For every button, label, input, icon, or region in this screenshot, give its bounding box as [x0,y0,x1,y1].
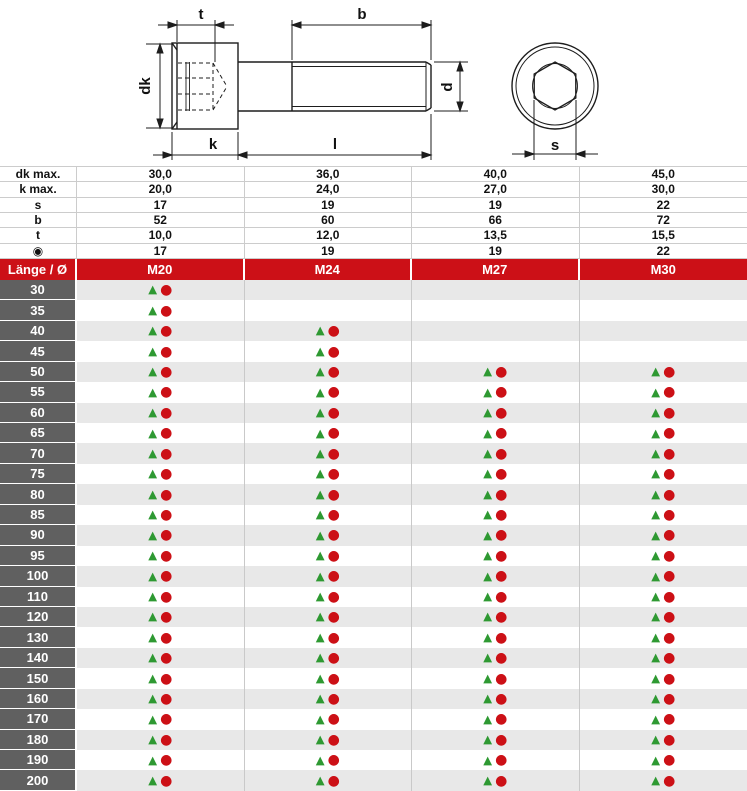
availability-cell: ▲● [580,730,747,750]
spec-value: 17 [77,198,245,212]
triangle-icon: ▲ [148,632,157,644]
length-diameter-header: Länge / Ø [0,259,77,280]
availability-cell: ▲● [245,423,413,443]
triangle-icon: ▲ [148,734,157,746]
triangle-icon: ▲ [148,550,157,562]
availability-cell: ▲● [77,280,245,300]
availability-cell: ▲● [77,403,245,423]
table-row: 160▲●▲●▲●▲● [0,689,747,709]
availability-cell: ▲● [77,505,245,525]
circle-icon: ● [663,672,675,686]
dim-label-l: l [333,136,337,153]
availability-cell: ▲● [77,607,245,627]
triangle-icon: ▲ [651,775,660,787]
availability-cell: ▲● [580,525,747,545]
triangle-icon: ▲ [148,591,157,603]
circle-icon: ● [663,467,675,481]
availability-cell: ▲● [580,607,747,627]
availability-cell: ▲● [580,546,747,566]
circle-icon: ● [328,365,340,379]
circle-icon: ● [328,508,340,522]
table-row: 30▲● [0,280,747,300]
triangle-icon: ▲ [651,387,660,399]
spec-value: 19 [245,244,413,258]
circle-icon: ● [328,385,340,399]
availability-cell: ▲● [412,607,580,627]
availability-cell: ▲● [245,525,413,545]
row-length-label: 30 [0,280,77,300]
table-row: 65▲●▲●▲●▲● [0,423,747,443]
spec-value: 72 [580,213,747,227]
availability-cell: ▲● [580,770,747,790]
availability-cell: ▲● [245,607,413,627]
triangle-icon: ▲ [148,652,157,664]
table-row: 95▲●▲●▲●▲● [0,546,747,566]
row-length-label: 200 [0,770,77,790]
triangle-icon: ▲ [316,509,325,521]
spec-row: s17191922 [0,198,747,213]
triangle-icon: ▲ [316,714,325,726]
availability-cell: ▲● [580,750,747,770]
availability-cell: ▲● [412,403,580,423]
circle-icon: ● [328,569,340,583]
availability-cell: ▲● [245,730,413,750]
availability-cell: ▲● [245,382,413,402]
triangle-icon: ▲ [316,448,325,460]
availability-cell: ▲● [412,546,580,566]
spec-value: 19 [245,198,413,212]
circle-icon: ● [495,774,507,788]
triangle-icon: ▲ [651,652,660,664]
availability-cell: ▲● [412,443,580,463]
triangle-icon: ▲ [316,387,325,399]
circle-icon: ● [160,569,172,583]
table-row: 190▲●▲●▲●▲● [0,750,747,770]
availability-cell: ▲● [580,505,747,525]
availability-cell [245,300,413,320]
triangle-icon: ▲ [148,305,157,317]
availability-cell: ▲● [245,341,413,361]
circle-icon: ● [328,672,340,686]
table-row: 80▲●▲●▲●▲● [0,484,747,504]
triangle-icon: ▲ [316,550,325,562]
dimension-spec-table: dk max.30,036,040,045,0k max.20,024,027,… [0,166,747,259]
availability-cell [412,300,580,320]
spec-value: 20,0 [77,182,245,196]
availability-cell: ▲● [412,525,580,545]
availability-cell: ▲● [580,443,747,463]
socket-key-size-icon: ◉ [0,244,77,258]
circle-icon: ● [495,447,507,461]
table-row: 70▲●▲●▲●▲● [0,443,747,463]
row-length-label: 60 [0,403,77,423]
circle-icon: ● [160,508,172,522]
table-row: 110▲●▲●▲●▲● [0,587,747,607]
table-row: 130▲●▲●▲●▲● [0,627,747,647]
circle-icon: ● [328,610,340,624]
spec-row: k max.20,024,027,030,0 [0,182,747,197]
table-row: 40▲●▲● [0,321,747,341]
triangle-icon: ▲ [651,591,660,603]
circle-icon: ● [495,528,507,542]
circle-icon: ● [328,406,340,420]
spec-value: 19 [412,244,580,258]
triangle-icon: ▲ [316,591,325,603]
triangle-icon: ▲ [483,714,492,726]
triangle-icon: ▲ [483,693,492,705]
table-row: 170▲●▲●▲●▲● [0,709,747,729]
dim-label-d: d [439,82,456,91]
triangle-icon: ▲ [316,489,325,501]
circle-icon: ● [663,774,675,788]
availability-cell: ▲● [580,362,747,382]
spec-value: 66 [412,213,580,227]
triangle-icon: ▲ [651,366,660,378]
spec-value: 10,0 [77,228,245,242]
availability-cell: ▲● [77,730,245,750]
availability-cell [580,280,747,300]
availability-cell: ▲● [412,423,580,443]
circle-icon: ● [328,528,340,542]
circle-icon: ● [663,426,675,440]
triangle-icon: ▲ [148,448,157,460]
spec-label: b [0,213,77,227]
spec-value: 22 [580,244,747,258]
availability-cell: ▲● [580,403,747,423]
circle-icon: ● [663,712,675,726]
triangle-icon: ▲ [316,366,325,378]
dim-label-dk: dk [137,77,154,95]
table-row: 45▲●▲● [0,341,747,361]
triangle-icon: ▲ [148,284,157,296]
circle-icon: ● [328,651,340,665]
availability-cell: ▲● [245,566,413,586]
availability-cell [580,341,747,361]
circle-icon: ● [495,569,507,583]
triangle-icon: ▲ [483,611,492,623]
triangle-icon: ▲ [651,509,660,521]
availability-cell: ▲● [245,750,413,770]
availability-cell: ▲● [580,648,747,668]
triangle-icon: ▲ [148,468,157,480]
spec-label: s [0,198,77,212]
triangle-icon: ▲ [483,652,492,664]
circle-icon: ● [495,753,507,767]
circle-icon: ● [160,324,172,338]
row-length-label: 170 [0,709,77,729]
triangle-icon: ▲ [316,571,325,583]
availability-cell: ▲● [77,648,245,668]
circle-icon: ● [328,549,340,563]
availability-cell: ▲● [245,689,413,709]
circle-icon: ● [160,753,172,767]
table-row: 60▲●▲●▲●▲● [0,403,747,423]
spec-label: dk max. [0,167,77,181]
triangle-icon: ▲ [651,673,660,685]
triangle-icon: ▲ [651,693,660,705]
circle-icon: ● [160,631,172,645]
availability-cell [580,321,747,341]
availability-cell: ▲● [77,321,245,341]
triangle-icon: ▲ [316,632,325,644]
availability-cell: ▲● [77,587,245,607]
triangle-icon: ▲ [316,468,325,480]
circle-icon: ● [160,712,172,726]
triangle-icon: ▲ [316,775,325,787]
triangle-icon: ▲ [651,734,660,746]
spec-value: 60 [245,213,413,227]
column-header-m27: M27 [412,259,580,280]
availability-cell: ▲● [245,505,413,525]
spec-row: b52606672 [0,213,747,228]
availability-cell: ▲● [245,587,413,607]
circle-icon: ● [495,610,507,624]
availability-table: 30▲●35▲●40▲●▲●45▲●▲●50▲●▲●▲●▲●55▲●▲●▲●▲●… [0,280,747,791]
triangle-icon: ▲ [483,571,492,583]
circle-icon: ● [663,692,675,706]
dim-label-b: b [357,6,366,23]
circle-icon: ● [495,406,507,420]
circle-icon: ● [160,385,172,399]
availability-cell: ▲● [412,689,580,709]
circle-icon: ● [663,590,675,604]
circle-icon: ● [160,488,172,502]
circle-icon: ● [160,447,172,461]
triangle-icon: ▲ [148,428,157,440]
circle-icon: ● [495,549,507,563]
row-length-label: 75 [0,464,77,484]
spec-value: 17 [77,244,245,258]
circle-icon: ● [160,774,172,788]
spec-value: 36,0 [245,167,413,181]
availability-cell: ▲● [245,443,413,463]
circle-icon: ● [495,488,507,502]
circle-icon: ● [663,631,675,645]
row-length-label: 50 [0,362,77,382]
spec-value: 45,0 [580,167,747,181]
table-row: 50▲●▲●▲●▲● [0,362,747,382]
circle-icon: ● [663,508,675,522]
circle-icon: ● [495,426,507,440]
availability-cell: ▲● [245,484,413,504]
triangle-icon: ▲ [148,571,157,583]
circle-icon: ● [328,712,340,726]
triangle-icon: ▲ [148,325,157,337]
availability-cell: ▲● [580,423,747,443]
availability-cell: ▲● [245,627,413,647]
circle-icon: ● [328,467,340,481]
spec-value: 27,0 [412,182,580,196]
availability-cell: ▲● [245,362,413,382]
row-length-label: 130 [0,627,77,647]
circle-icon: ● [663,651,675,665]
circle-icon: ● [328,447,340,461]
triangle-icon: ▲ [651,550,660,562]
triangle-icon: ▲ [316,652,325,664]
triangle-icon: ▲ [483,591,492,603]
triangle-icon: ▲ [148,366,157,378]
table-row: 75▲●▲●▲●▲● [0,464,747,484]
circle-icon: ● [328,631,340,645]
triangle-icon: ▲ [483,489,492,501]
triangle-icon: ▲ [148,693,157,705]
dim-label-k: k [209,136,218,153]
triangle-icon: ▲ [651,530,660,542]
triangle-icon: ▲ [651,468,660,480]
circle-icon: ● [160,733,172,747]
table-row: 140▲●▲●▲●▲● [0,648,747,668]
availability-cell: ▲● [412,627,580,647]
availability-cell: ▲● [77,300,245,320]
triangle-icon: ▲ [316,428,325,440]
circle-icon: ● [328,426,340,440]
circle-icon: ● [495,508,507,522]
availability-cell: ▲● [412,709,580,729]
spec-value: 30,0 [77,167,245,181]
availability-cell: ▲● [77,627,245,647]
circle-icon: ● [160,406,172,420]
circle-icon: ● [663,549,675,563]
triangle-icon: ▲ [651,714,660,726]
circle-icon: ● [160,692,172,706]
circle-icon: ● [495,712,507,726]
availability-cell: ▲● [245,668,413,688]
circle-icon: ● [495,467,507,481]
circle-icon: ● [328,324,340,338]
row-length-label: 190 [0,750,77,770]
availability-cell: ▲● [77,709,245,729]
row-length-label: 180 [0,730,77,750]
availability-cell: ▲● [580,627,747,647]
triangle-icon: ▲ [483,468,492,480]
circle-icon: ● [495,692,507,706]
circle-icon: ● [160,345,172,359]
availability-cell: ▲● [77,546,245,566]
circle-icon: ● [328,774,340,788]
triangle-icon: ▲ [148,387,157,399]
triangle-icon: ▲ [316,530,325,542]
column-header-m30: M30 [580,259,747,280]
availability-cell: ▲● [77,362,245,382]
availability-cell: ▲● [245,546,413,566]
triangle-icon: ▲ [316,693,325,705]
availability-cell [580,300,747,320]
table-row: 55▲●▲●▲●▲● [0,382,747,402]
circle-icon: ● [328,590,340,604]
availability-cell [412,341,580,361]
triangle-icon: ▲ [651,407,660,419]
availability-cell: ▲● [412,648,580,668]
spec-value: 24,0 [245,182,413,196]
circle-icon: ● [160,467,172,481]
triangle-icon: ▲ [651,611,660,623]
availability-cell: ▲● [245,709,413,729]
availability-cell: ▲● [77,668,245,688]
spec-value: 40,0 [412,167,580,181]
spec-label: t [0,228,77,242]
triangle-icon: ▲ [651,755,660,767]
circle-icon: ● [663,733,675,747]
catalog-page: t b dk k l d s dk max.30,036,040,045,0k … [0,0,747,791]
triangle-icon: ▲ [148,775,157,787]
availability-cell: ▲● [580,689,747,709]
availability-cell: ▲● [412,770,580,790]
circle-icon: ● [328,345,340,359]
availability-cell: ▲● [77,382,245,402]
table-row: 35▲● [0,300,747,320]
triangle-icon: ▲ [483,734,492,746]
spec-row: t10,012,013,515,5 [0,228,747,243]
availability-cell: ▲● [77,689,245,709]
triangle-icon: ▲ [483,550,492,562]
availability-cell: ▲● [77,341,245,361]
availability-cell: ▲● [412,505,580,525]
circle-icon: ● [495,385,507,399]
circle-icon: ● [160,672,172,686]
circle-icon: ● [663,610,675,624]
circle-icon: ● [663,569,675,583]
triangle-icon: ▲ [148,407,157,419]
screw-drawing-svg: t b dk k l d s [0,0,747,166]
row-length-label: 100 [0,566,77,586]
triangle-icon: ▲ [483,632,492,644]
spec-label: k max. [0,182,77,196]
circle-icon: ● [495,651,507,665]
availability-cell: ▲● [412,464,580,484]
column-header-m20: M20 [77,259,245,280]
triangle-icon: ▲ [483,530,492,542]
triangle-icon: ▲ [483,509,492,521]
triangle-icon: ▲ [483,673,492,685]
availability-cell: ▲● [412,382,580,402]
triangle-icon: ▲ [148,509,157,521]
circle-icon: ● [663,528,675,542]
table-row: 200▲●▲●▲●▲● [0,770,747,790]
table-row: 150▲●▲●▲●▲● [0,668,747,688]
triangle-icon: ▲ [148,489,157,501]
availability-cell [245,280,413,300]
triangle-icon: ▲ [651,632,660,644]
row-length-label: 45 [0,341,77,361]
triangle-icon: ▲ [316,755,325,767]
triangle-icon: ▲ [148,530,157,542]
row-length-label: 70 [0,443,77,463]
availability-cell: ▲● [77,750,245,770]
row-length-label: 150 [0,668,77,688]
triangle-icon: ▲ [316,407,325,419]
circle-icon: ● [328,488,340,502]
availability-cell: ▲● [580,566,747,586]
triangle-icon: ▲ [316,346,325,358]
triangle-icon: ▲ [483,407,492,419]
availability-cell: ▲● [412,362,580,382]
row-length-label: 40 [0,321,77,341]
availability-cell: ▲● [77,464,245,484]
row-length-label: 85 [0,505,77,525]
circle-icon: ● [663,365,675,379]
triangle-icon: ▲ [651,571,660,583]
circle-icon: ● [160,426,172,440]
spec-value: 13,5 [412,228,580,242]
availability-cell: ▲● [580,484,747,504]
row-length-label: 160 [0,689,77,709]
availability-cell: ▲● [77,770,245,790]
triangle-icon: ▲ [483,775,492,787]
triangle-icon: ▲ [148,611,157,623]
circle-icon: ● [160,304,172,318]
availability-cell: ▲● [77,566,245,586]
spec-value: 15,5 [580,228,747,242]
